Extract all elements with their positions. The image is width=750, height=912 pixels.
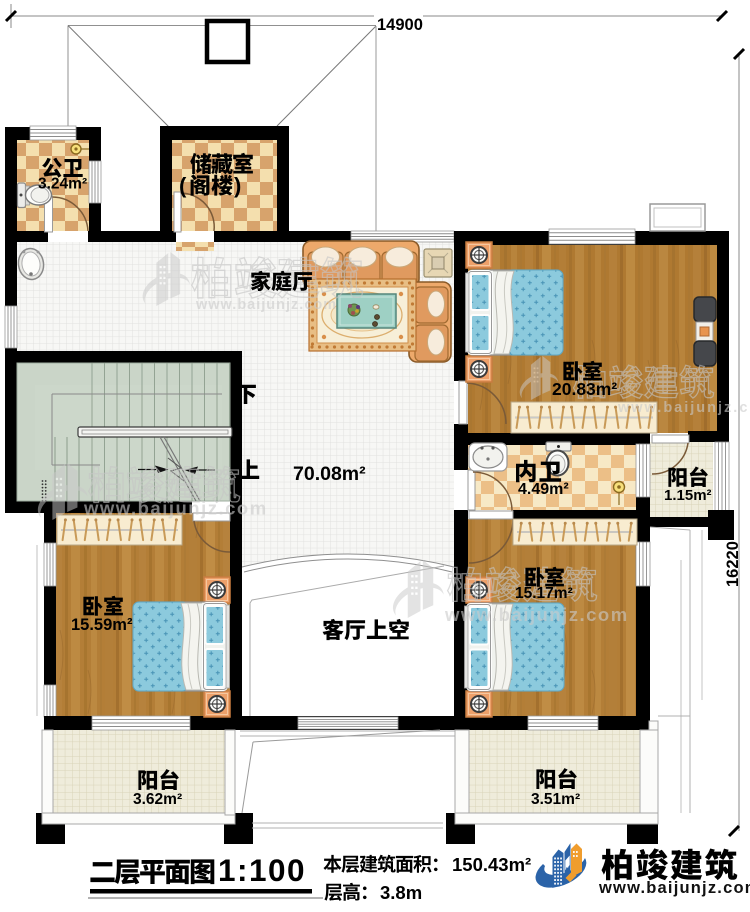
svg-text:3.62m²: 3.62m² bbox=[133, 791, 182, 808]
svg-text:150.43m²: 150.43m² bbox=[452, 854, 531, 875]
svg-text:): ) bbox=[234, 173, 241, 198]
svg-text:1.15m²: 1.15m² bbox=[664, 487, 712, 504]
svg-text:3.8m: 3.8m bbox=[380, 882, 422, 903]
svg-text:www.baijunjz.com: www.baijunjz.com bbox=[617, 400, 750, 416]
svg-text:14900: 14900 bbox=[377, 16, 423, 34]
svg-text:3.24m²: 3.24m² bbox=[38, 176, 87, 193]
svg-text:20.83m²: 20.83m² bbox=[552, 379, 617, 399]
svg-text:15.59m²: 15.59m² bbox=[71, 616, 133, 634]
svg-text:16220: 16220 bbox=[724, 541, 742, 587]
svg-text:www.baijunjz.com: www.baijunjz.com bbox=[83, 498, 268, 519]
svg-text:www.baijunjz.com: www.baijunjz.com bbox=[195, 297, 337, 313]
svg-text:4.49m²: 4.49m² bbox=[518, 481, 569, 498]
svg-text:www.baijunjz.com: www.baijunjz.com bbox=[598, 879, 750, 897]
svg-text:www.baijunjz.com: www.baijunjz.com bbox=[444, 604, 629, 625]
svg-text:3.51m²: 3.51m² bbox=[531, 791, 580, 808]
svg-text:1:100: 1:100 bbox=[218, 852, 306, 888]
svg-text:(: ( bbox=[179, 173, 187, 198]
svg-text:70.08m²: 70.08m² bbox=[293, 463, 366, 485]
svg-text:15.17m²: 15.17m² bbox=[515, 585, 573, 602]
